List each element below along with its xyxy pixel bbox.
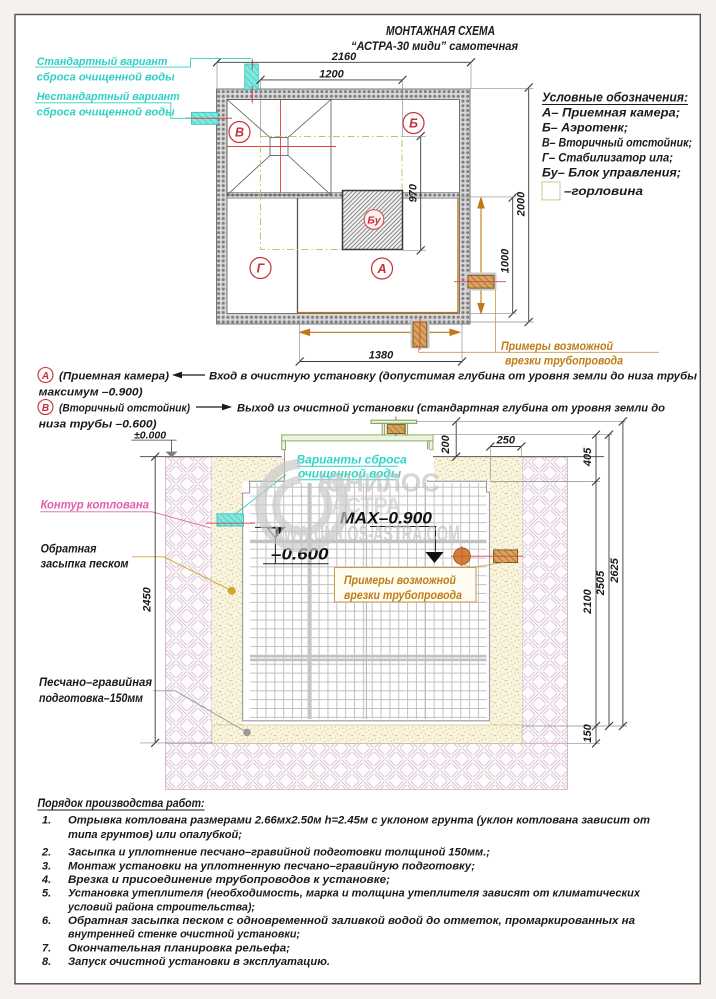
svg-text:Песчано–гравийная: Песчано–гравийная [39,677,152,689]
svg-text:Обратная засыпка песком с одно: Обратная засыпка песком с одновременной … [68,915,635,927]
svg-text:Вход в очистную установку (доп: Вход в очистную установку (допустимая гл… [209,371,698,383]
svg-text:Б– Аэротенк;: Б– Аэротенк; [542,123,628,135]
svg-text:1.: 1. [42,815,51,827]
svg-text:Примеры возможной: Примеры возможной [501,341,613,353]
svg-text:Отрывка котлована размерами 2.: Отрывка котлована размерами 2.66мх2.50м … [68,815,650,827]
svg-text:150: 150 [582,723,594,742]
svg-text:5.: 5. [42,888,51,900]
svg-text:В: В [235,126,244,140]
svg-text:8.: 8. [42,956,51,968]
svg-text:(Вторичный отстойник): (Вторичный отстойник) [59,403,190,415]
svg-text:Врезка и присоединение трубопр: Врезка и присоединение трубопроводов к у… [68,874,390,886]
svg-text:А: А [376,262,386,276]
svg-text:Окончательная планировка релье: Окончательная планировка рельефа; [68,943,290,955]
svg-text:Обратная: Обратная [41,544,97,556]
svg-text:7.: 7. [42,943,51,955]
svg-text:Условные обозначения:: Условные обозначения: [542,91,688,105]
svg-text:200: 200 [440,434,452,454]
svg-text:Установка утеплителя (необходи: Установка утеплителя (необходимость, мар… [68,888,641,900]
svg-text:А– Приемная камера;: А– Приемная камера; [541,108,680,120]
svg-text:МОНТАЖНАЯ СХЕМА: МОНТАЖНАЯ СХЕМА [386,24,495,38]
svg-text:Бу– Блок управления;: Бу– Блок управления; [542,168,681,180]
svg-text:подготовка–150мм: подготовка–150мм [39,693,143,705]
svg-text:сброса очищенной воды: сброса очищенной воды [37,72,176,84]
svg-text:250: 250 [496,435,516,447]
svg-text:врезки трубопровода: врезки трубопровода [344,590,463,602]
svg-text:типа грунтов) или опалубкой;: типа грунтов) или опалубкой; [68,829,242,841]
svg-text:Варианты сброса: Варианты сброса [297,453,408,467]
svg-text:Порядок производства работ:: Порядок производства работ: [38,798,205,810]
svg-text:1000: 1000 [500,248,512,273]
svg-text:Бу: Бу [367,215,381,227]
svg-text:970: 970 [408,183,420,202]
svg-text:Запуск очистной установки в эк: Запуск очистной установки в эксплуатацию… [68,956,330,968]
svg-text:2160: 2160 [331,51,357,63]
svg-text:6.: 6. [42,915,51,927]
svg-text:1380: 1380 [369,350,394,362]
svg-text:врезки трубопровода: врезки трубопровода [505,356,624,368]
svg-text:Г: Г [257,262,266,276]
svg-text:А: А [41,371,49,382]
svg-text:Монтаж установки на уплотненну: Монтаж установки на уплотненную песчано–… [68,861,475,873]
svg-text:–горловина: –горловина [564,186,644,198]
svg-text:Примеры возможной: Примеры возможной [344,575,456,587]
svg-text:“АСТРА-30 миди” самотечная: “АСТРА-30 миди” самотечная [351,39,518,53]
svg-text:1200: 1200 [319,69,344,81]
svg-text:Выход из очистной установки (с: Выход из очистной установки (стандартная… [237,403,665,415]
svg-text:В: В [42,403,49,414]
svg-text:внутренней стенке очистной уст: внутренней стенке очистной установки; [68,929,300,941]
svg-text:Стандартный вариант: Стандартный вариант [37,56,168,68]
svg-text:Б: Б [409,117,418,131]
svg-text:(Приемная камера): (Приемная камера) [59,371,169,383]
svg-text:Нестандартный вариант: Нестандартный вариант [37,91,180,103]
svg-text:Засыпка и уплотнение песчано–г: Засыпка и уплотнение песчано–гравийной п… [68,847,490,859]
svg-text:2450: 2450 [142,586,154,612]
svg-text:WWW.UNILOS-ASTRA.COM: WWW.UNILOS-ASTRA.COM [270,521,460,547]
svg-text:2100: 2100 [582,588,594,614]
svg-text:2505: 2505 [595,570,607,596]
svg-text:В– Вторичный отстойник;: В– Вторичный отстойник; [542,138,692,150]
svg-text:засыпка песком: засыпка песком [41,559,129,571]
svg-text:3.: 3. [42,861,51,873]
svg-text:2.: 2. [41,847,51,859]
svg-text:Контур котлована: Контур котлована [41,498,150,512]
svg-text:Г– Стабилизатор ила;: Г– Стабилизатор ила; [542,153,673,165]
svg-text:4.: 4. [41,874,51,886]
svg-text:2625: 2625 [609,557,621,583]
svg-text:2000: 2000 [516,191,528,217]
svg-text:сброса очищенной воды: сброса очищенной воды [37,107,176,119]
svg-text:условий района строительства);: условий района строительства); [67,902,255,914]
svg-text:АСТРА: АСТРА [331,493,401,518]
svg-text:максимум –0.900): максимум –0.900) [39,387,143,399]
svg-text:405: 405 [582,447,594,467]
